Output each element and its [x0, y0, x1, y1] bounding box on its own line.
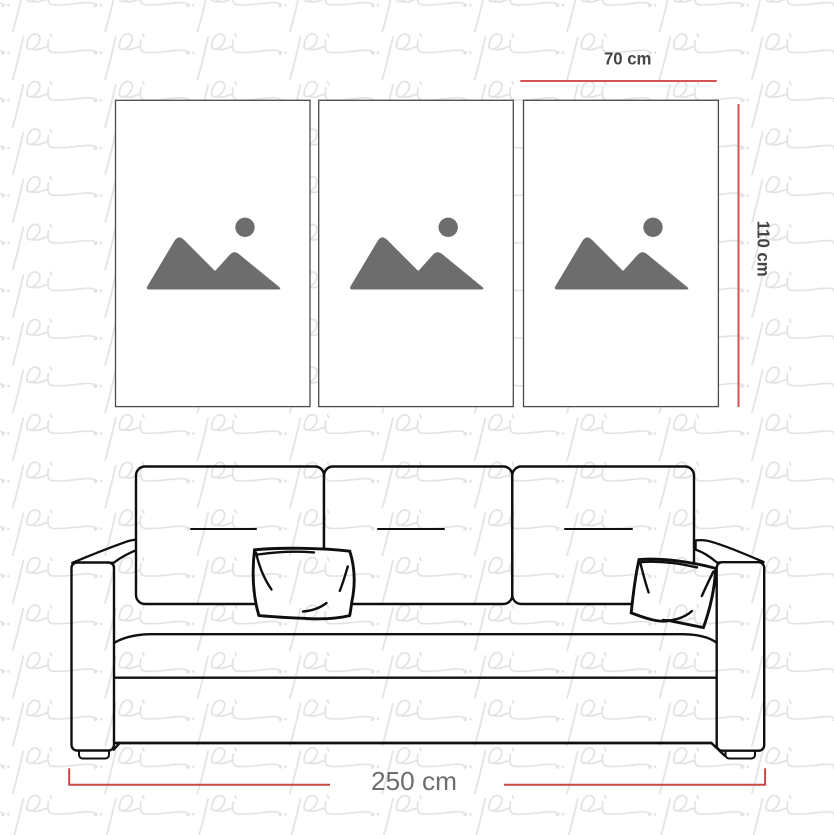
- svg-text:70 cm: 70 cm: [604, 49, 652, 69]
- svg-text:110 cm: 110 cm: [754, 221, 774, 277]
- svg-text:250 cm: 250 cm: [371, 768, 457, 796]
